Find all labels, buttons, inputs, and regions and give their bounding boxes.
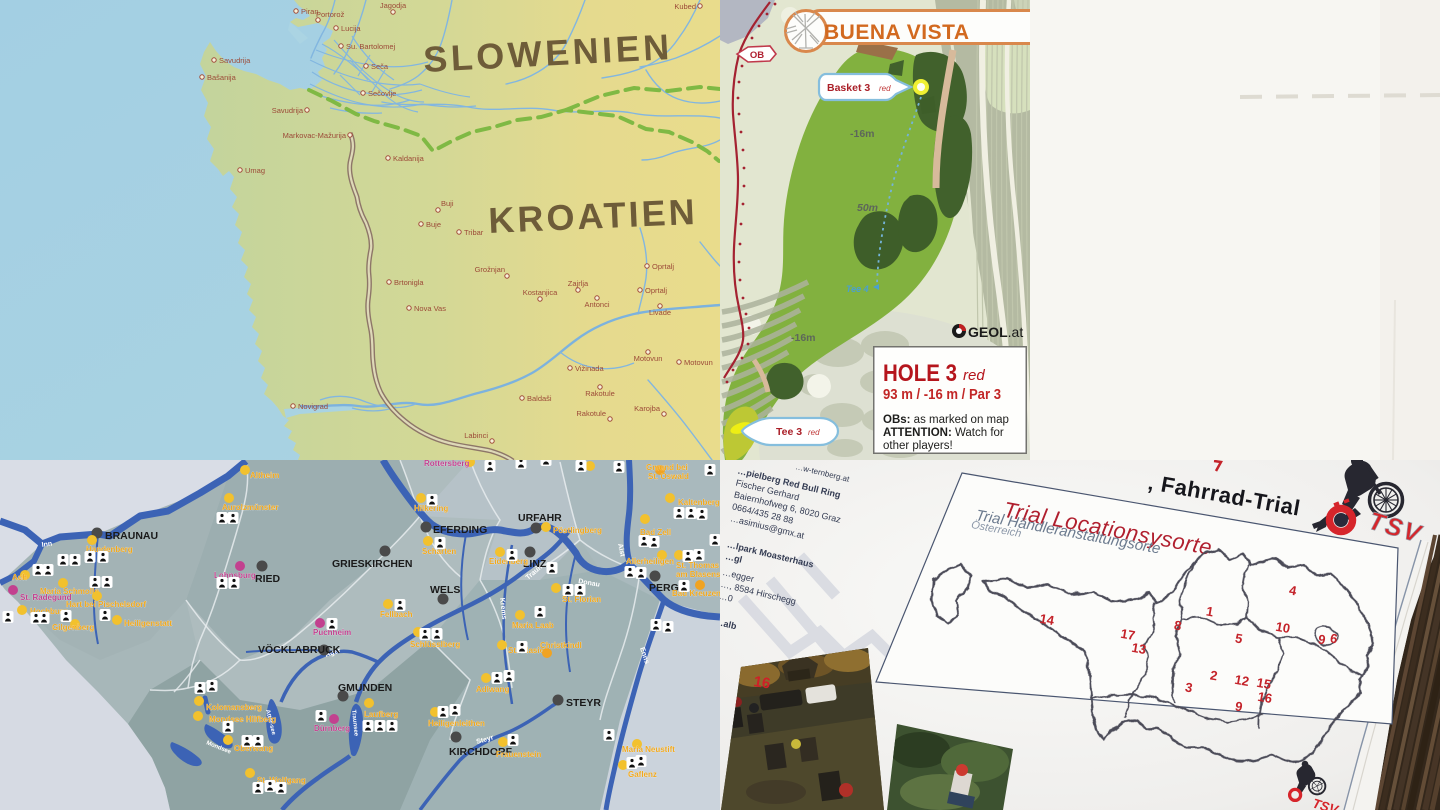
svg-text:Oprtalj: Oprtalj	[645, 286, 667, 295]
svg-text:Savudrija: Savudrija	[219, 56, 251, 65]
svg-text:Kaldanija: Kaldanija	[393, 154, 425, 163]
svg-text:Novigrad: Novigrad	[298, 402, 328, 411]
svg-text:St. Oswald: St. Oswald	[648, 472, 689, 481]
svg-text:50m: 50m	[857, 202, 878, 214]
svg-text:Oprtalj: Oprtalj	[652, 262, 674, 271]
svg-text:Inn: Inn	[41, 541, 52, 549]
svg-text:Gmund bei: Gmund bei	[646, 463, 688, 472]
svg-text:Buje: Buje	[426, 220, 441, 229]
svg-text:Motovun: Motovun	[634, 354, 663, 363]
svg-text:red: red	[808, 428, 820, 437]
svg-text:Rakotule: Rakotule	[585, 389, 615, 398]
svg-text:Ach: Ach	[12, 573, 27, 582]
svg-text:Antonci: Antonci	[584, 300, 609, 309]
svg-text:GMUNDEN: GMUNDEN	[338, 682, 392, 694]
svg-text:Gilgenberg: Gilgenberg	[52, 623, 94, 632]
svg-text:WELS: WELS	[430, 584, 460, 596]
svg-text:Markovac-Mažurija: Markovac-Mažurija	[283, 131, 347, 140]
svg-text:Rottersberg: Rottersberg	[424, 459, 469, 468]
svg-text:Aurolzmünster: Aurolzmünster	[222, 503, 278, 512]
svg-text:Karojba: Karojba	[634, 404, 661, 413]
svg-text:Motovun: Motovun	[684, 358, 713, 367]
svg-text:ATTENTION: Watch for: ATTENTION: Watch for	[883, 427, 1004, 439]
svg-text:red: red	[963, 367, 985, 384]
svg-text:Kolomansberg: Kolomansberg	[206, 703, 262, 712]
svg-text:Umag: Umag	[245, 166, 265, 175]
svg-text:Rakotule: Rakotule	[576, 409, 606, 418]
svg-text:GRIESKIRCHEN: GRIESKIRCHEN	[332, 558, 413, 570]
svg-text:Kubed: Kubed	[674, 2, 696, 11]
svg-text:Seča: Seča	[371, 62, 389, 71]
svg-text:RIED: RIED	[255, 573, 281, 585]
svg-text:16: 16	[1256, 689, 1273, 706]
svg-text:OBs: as marked on map: OBs: as marked on map	[883, 414, 1009, 426]
svg-text:Altheim: Altheim	[250, 471, 279, 480]
svg-text:Kostanjica: Kostanjica	[523, 288, 558, 297]
svg-text:Mondsee Hilfberg: Mondsee Hilfberg	[209, 715, 276, 724]
svg-text:St. Florian: St. Florian	[562, 595, 601, 604]
svg-text:Laufberg: Laufberg	[364, 710, 398, 719]
svg-text:St. Thomas: St. Thomas	[676, 561, 720, 570]
svg-text:Pöstlingberg: Pöstlingberg	[553, 526, 602, 535]
svg-text:red: red	[879, 84, 891, 93]
svg-text:13: 13	[1130, 640, 1147, 657]
svg-text:Labinci: Labinci	[464, 431, 488, 440]
svg-text:Tee 4: Tee 4	[846, 284, 869, 294]
svg-text:16: 16	[752, 673, 771, 692]
svg-text:-16m: -16m	[850, 128, 875, 140]
svg-text:Hart bei Pischelsdorf: Hart bei Pischelsdorf	[66, 600, 146, 609]
svg-text:93 m / -16 m / Par 3: 93 m / -16 m / Par 3	[883, 387, 1001, 403]
svg-text:Fellbach: Fellbach	[380, 610, 413, 619]
svg-text:12: 12	[1233, 672, 1250, 689]
svg-text:Buji: Buji	[441, 199, 454, 208]
svg-text:-16m: -16m	[791, 332, 816, 344]
svg-text:Adlwang: Adlwang	[476, 685, 509, 694]
svg-text:HOLE 3: HOLE 3	[883, 360, 957, 387]
svg-text:Su. Bartolomej: Su. Bartolomej	[346, 42, 396, 51]
svg-text:Allerheiligen: Allerheiligen	[626, 557, 674, 566]
svg-text:Basket 3: Basket 3	[827, 82, 870, 94]
svg-text:VÖCKLABRUCK: VÖCKLABRUCK	[258, 643, 341, 656]
svg-text:URFAHR: URFAHR	[518, 512, 562, 524]
svg-text:Christkindl: Christkindl	[540, 641, 582, 650]
svg-text:Zajrlja: Zajrlja	[568, 279, 589, 288]
svg-text:Vižinada: Vižinada	[575, 364, 604, 373]
svg-text:Tribar: Tribar	[464, 228, 484, 237]
svg-text:Brtonigla: Brtonigla	[394, 278, 424, 287]
svg-text:EFERDING: EFERDING	[433, 524, 487, 536]
svg-text:Livade: Livade	[649, 308, 671, 317]
svg-text:GEOL.at: GEOL.at	[968, 324, 1023, 340]
svg-text:Gaflenz: Gaflenz	[628, 770, 657, 779]
svg-text:Kaltenberg: Kaltenberg	[678, 498, 720, 507]
svg-text:Bašanija: Bašanija	[207, 73, 237, 82]
svg-text:other players!: other players!	[883, 440, 953, 452]
svg-text:Lucija: Lucija	[341, 24, 361, 33]
svg-text:Jagodja: Jagodja	[380, 1, 407, 10]
svg-text:Heiligenleithen: Heiligenleithen	[428, 719, 485, 728]
svg-text:Maria Laab: Maria Laab	[512, 621, 554, 630]
svg-text:OB: OB	[750, 50, 764, 61]
svg-text:Heiligenstatt: Heiligenstatt	[124, 619, 172, 628]
svg-text:Savudrija: Savudrija	[272, 106, 304, 115]
svg-text:BRAUNAU: BRAUNAU	[105, 530, 158, 542]
svg-text:Maria Neustift: Maria Neustift	[622, 745, 675, 754]
svg-text:Nova Vas: Nova Vas	[414, 304, 446, 313]
svg-text:Portorož: Portorož	[316, 10, 345, 19]
svg-text:Schlüsslberg: Schlüsslberg	[410, 640, 460, 649]
svg-text:Frauenstein: Frauenstein	[496, 750, 541, 759]
svg-text:Grožnjan: Grožnjan	[475, 265, 505, 274]
svg-text:St. Radegund: St. Radegund	[20, 593, 72, 602]
svg-text:Baldaši: Baldaši	[527, 394, 552, 403]
svg-text:Tee 3: Tee 3	[776, 426, 802, 438]
svg-text:Dürnberg: Dürnberg	[314, 724, 350, 733]
svg-text:Sečovlje: Sečovlje	[368, 89, 396, 98]
svg-text:STEYR: STEYR	[566, 697, 601, 709]
svg-text:BUENA VISTA: BUENA VISTA	[824, 21, 970, 44]
svg-text:10: 10	[1274, 619, 1291, 636]
